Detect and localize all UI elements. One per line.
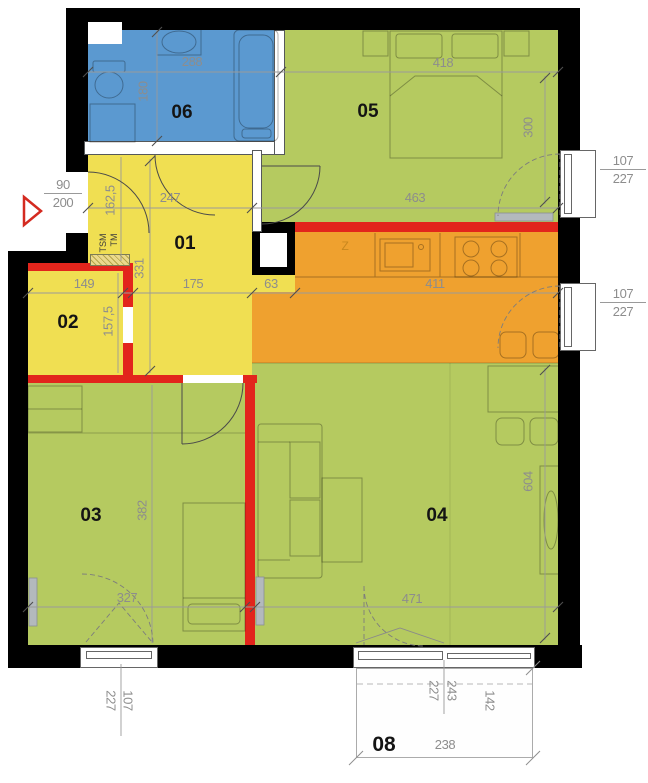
dim-kitchen-shaft: 63 [251,276,291,291]
dim-kitchen-counter: 411 [415,276,455,291]
kitchen-appliance-label: Z [325,239,365,254]
dim-wardrobe-height: 157,5 [101,302,116,342]
dim-bedroom1-width: 327 [107,590,147,605]
dim-hall-width: 175 [173,276,213,291]
single-bed-icon [183,503,245,631]
dim-balcony-side: 142 [483,681,498,721]
room-number-wardrobe: 02 [46,312,90,334]
dim-bedroom1-window-height: 227 [104,681,119,721]
kitchen-window-size: 107 227 [600,286,646,319]
toilet-icon [93,61,125,98]
entrance-door-height: 200 [44,194,82,210]
dim-balcony-depth-inner: 227 [427,671,442,711]
room-number-bedroom2: 05 [346,101,390,123]
dim-balcony-depth-outer: 243 [445,671,460,711]
bedroom2-window-height: 227 [600,170,646,186]
dim-bedroom2-height: 300 [521,108,536,148]
room-number-hall: 01 [163,233,207,255]
dim-bedroom2-bed-zone: 418 [423,55,463,70]
dim-living-height: 604 [521,462,536,502]
dim-hall-top: 247 [150,190,190,205]
bedroom2-window-size: 107 227 [600,153,646,186]
kitchen-window-height: 227 [600,303,646,319]
dim-wardrobe-width: 149 [64,276,104,291]
door-swings [88,155,320,444]
sofa-icon [258,424,362,578]
room-number-bathroom: 06 [160,102,204,124]
room-number-bedroom1: 03 [69,505,113,527]
dining-table-icon [488,366,560,445]
dim-hall-entry-wall: 162,5 [103,181,118,221]
tv-cabinet-icon [540,466,562,574]
shower-icon [90,104,135,142]
dim-bedroom2-width: 463 [395,190,435,205]
dim-bathroom-height: 180 [136,72,151,112]
dim-balcony-width: 238 [425,737,465,752]
double-bed-icon [390,31,502,158]
sink-icon [157,29,201,55]
bathtub-icon [234,30,278,141]
kitchen-window-width: 107 [600,286,646,303]
dim-bedroom1-height: 382 [135,491,150,531]
room-number-balcony: 08 [362,734,406,756]
dim-bedroom1-window-width: 107 [121,681,136,721]
nightstand-icon [363,31,388,56]
nightstand-icon [504,31,529,56]
room-number-living: 04 [415,505,459,527]
dimension-lines [28,30,558,736]
dim-hall-height: 331 [132,249,147,289]
dryer-label: TSM [98,228,108,258]
dim-bathroom-width: 288 [172,54,212,69]
bedroom2-window-width: 107 [600,153,646,170]
kitchen-chairs-icon [500,332,559,358]
entrance-door-size: 90 200 [44,177,82,210]
tilt-indicator [356,628,444,643]
washer-label: TM [109,225,119,255]
wardrobe-icon [28,386,82,432]
entrance-door-width: 90 [44,177,82,194]
dim-living-width: 471 [392,591,432,606]
plan-linework [0,0,648,783]
entrance-arrow-icon [24,197,41,225]
floor-plan: 01 02 03 04 05 06 08 288 418 463 247 175… [0,0,648,783]
